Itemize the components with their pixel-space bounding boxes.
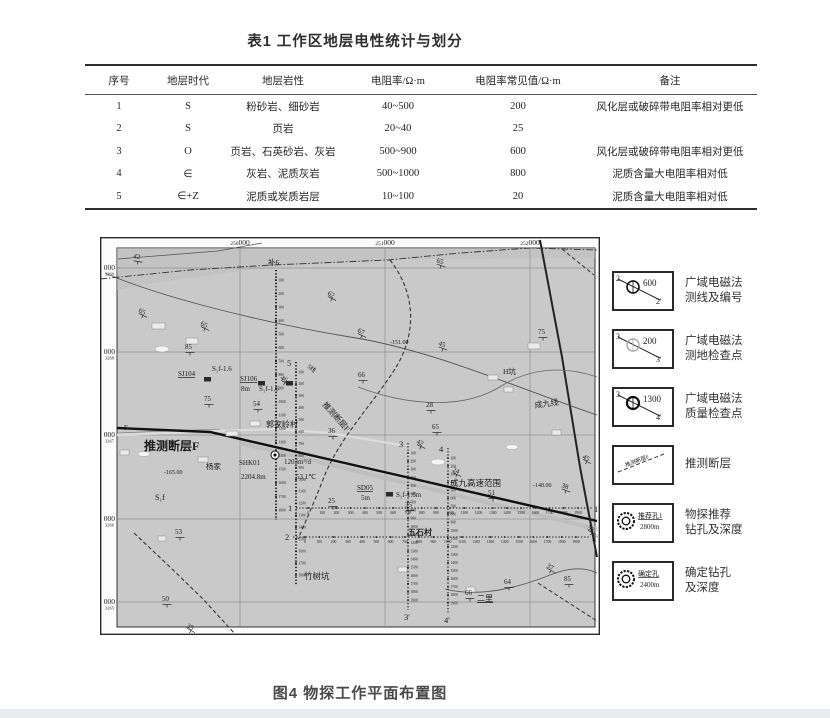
legend-symbol-box: 推荐孔12800m [612, 503, 674, 543]
table-cell: 泥质含量大电阻率相对低 [583, 185, 757, 209]
station-dot [407, 460, 409, 462]
station-dot [478, 507, 480, 509]
legend-symbol-text: 确定孔 [638, 569, 659, 578]
northing-label: 3268 [105, 356, 115, 361]
map-label: 竹树坑 [304, 571, 330, 581]
station-dot [275, 509, 277, 511]
map-label: -165.00 [164, 470, 183, 476]
table-cell: 10~100 [343, 185, 453, 209]
station-label: 1600 [451, 577, 458, 581]
legend-symbol-text: 200 [643, 336, 657, 346]
station-label: 1300 [411, 549, 418, 553]
station-dot [375, 536, 377, 538]
station-dot [275, 347, 277, 349]
station-label: 1000 [446, 511, 454, 515]
map-legend: 26002'广域电磁法测线及编号32003'广域电磁法测地检查点313004'广… [612, 272, 812, 620]
station-dot [547, 536, 549, 538]
column-header: 电阻率/Ω·m [343, 65, 453, 95]
station-label: 1300 [299, 514, 306, 518]
station-dot [295, 491, 297, 493]
station-marker [204, 377, 211, 382]
legend-label-line: 测线及编号 [685, 291, 743, 306]
map-label: 66 [358, 371, 366, 379]
map-label: 5m [361, 494, 371, 502]
map-label: S₁f-1.6 [259, 385, 279, 393]
legend-label-line: 物探推荐 [685, 508, 743, 523]
station-dot [275, 496, 277, 498]
station-dot [275, 360, 277, 362]
station-label: 1700 [546, 511, 554, 515]
station-dot [336, 507, 338, 509]
station-label: 600 [390, 511, 396, 515]
table-cell: 600 [453, 140, 583, 163]
station-label: 900 [433, 511, 439, 515]
station-label: 300 [345, 540, 351, 544]
legend-symbol-text: 推测断层F [624, 452, 650, 468]
station-label: 800 [419, 511, 425, 515]
table-header-row: 序号地层时代地层岩性电阻率/Ω·m电阻率常见值/Ω·m备注 [85, 65, 757, 95]
station-label: 1400 [503, 511, 511, 515]
station-dot [390, 536, 392, 538]
northing-label: 3267 [105, 439, 115, 444]
station-dot [404, 536, 406, 538]
legend-label-line: 广域电磁法 [685, 392, 743, 407]
station-label: 1600 [279, 481, 286, 485]
station-dot [447, 465, 449, 467]
station-label: 400 [299, 406, 305, 410]
station-label: 500 [373, 540, 379, 544]
legend-symbol-text: 2400m [640, 581, 660, 589]
map-label: -151.00 [390, 340, 409, 346]
building [528, 343, 540, 349]
building [158, 536, 166, 541]
station-label: 1000 [451, 529, 458, 533]
map-label: S₁f-1.6m [396, 491, 422, 499]
station-dot [318, 536, 320, 538]
legend-label: 推测断层 [685, 457, 731, 472]
station-label: 300 [299, 394, 305, 398]
drill-hole-glyph [622, 517, 630, 525]
map-label: 郭家岭村 [266, 419, 298, 429]
survey-map: 2500002510002520000003269000326800032670… [100, 237, 600, 635]
table-cell: 4 [85, 163, 153, 186]
table-row: 1S粉砂岩、细砂岩40~500200风化层或破碎带电阻率相对更低 [85, 95, 757, 118]
station-dot [295, 431, 297, 433]
station-label: 600 [299, 430, 305, 434]
map-label: 补6 [268, 257, 279, 267]
legend-item: 确定孔2400m确定钻孔及深度 [612, 562, 812, 599]
station-dot [295, 407, 297, 409]
station-dot [295, 455, 297, 457]
map-label: 85 [564, 575, 572, 583]
station-label: 1500 [411, 566, 418, 570]
map-label: 53 [175, 528, 183, 536]
station-label: 500 [451, 489, 457, 493]
legend-label-line: 及深度 [685, 581, 731, 596]
station-label: 1600 [299, 549, 306, 553]
station-dot [295, 395, 297, 397]
legend-label: 物探推荐钻孔及深度 [685, 508, 743, 538]
building [552, 430, 561, 435]
station-dot [364, 507, 366, 509]
station-dot [295, 443, 297, 445]
station-label: 1400 [299, 526, 306, 530]
station-dot [435, 507, 437, 509]
station-label: 1800 [560, 511, 568, 515]
station-label: 100 [411, 451, 417, 455]
column-header: 地层时代 [153, 65, 223, 95]
station-dot [432, 536, 434, 538]
legend-label-line: 钻孔及深度 [685, 523, 743, 538]
station-dot [407, 591, 409, 593]
station-label: 1800 [558, 540, 566, 544]
station-dot [575, 536, 577, 538]
station-dot [447, 522, 449, 524]
map-label: SHK01 [239, 459, 261, 467]
station-label: 100 [319, 511, 325, 515]
map-label: 二里 [477, 594, 493, 603]
legend-label-line: 广域电磁法 [685, 334, 743, 349]
table-cell: 20 [453, 185, 583, 209]
table-cell: 灰岩、泥质灰岩 [223, 163, 343, 186]
map-label: 85 [185, 343, 193, 351]
map-label: 75 [204, 395, 212, 403]
station-label: 200 [279, 292, 285, 296]
station-dot [407, 550, 409, 552]
legend-symbol-text: 2800m [640, 523, 660, 531]
table-cell: 页岩 [223, 118, 343, 141]
column-header: 电阻率常见值/Ω·m [453, 65, 583, 95]
station-dot [447, 457, 449, 459]
station-dot [447, 562, 449, 564]
table-cell: 40~500 [343, 95, 453, 118]
station-dot [447, 530, 449, 532]
station-label: 700 [402, 540, 408, 544]
station-dot [447, 473, 449, 475]
legend-symbol-text: 1300 [643, 394, 662, 404]
map-label: 28 [426, 401, 434, 409]
station-dot [549, 507, 551, 509]
station-dot [392, 507, 394, 509]
map-label: 64 [504, 578, 512, 586]
legend-symbol-text: 4' [656, 413, 662, 421]
station-label: 200 [331, 540, 337, 544]
station-label: 200 [411, 459, 417, 463]
building [226, 431, 238, 436]
station-dot [295, 550, 297, 552]
station-label: 900 [299, 466, 305, 470]
station-dot [407, 485, 409, 487]
station-dot [407, 468, 409, 470]
station-label: 1200 [475, 511, 483, 515]
station-label: 200 [299, 382, 305, 386]
station-marker [386, 492, 393, 497]
station-dot [506, 507, 508, 509]
legend-symbol-text: 2 [616, 274, 620, 283]
station-dot [447, 497, 449, 499]
page: 表1 工作区地层电性统计与划分 序号地层时代地层岩性电阻率/Ω·m电阻率常见值/… [0, 0, 830, 718]
station-dot [447, 554, 449, 556]
station-label: 0 [304, 540, 306, 544]
station-label: 1800 [451, 593, 458, 597]
map-label: SJ106 [240, 375, 258, 383]
station-dot [407, 599, 409, 601]
legend-item: 推测断层F推测断层 [612, 446, 812, 483]
station-dot [518, 536, 520, 538]
line-number: 5 [287, 358, 291, 368]
pond [506, 445, 518, 450]
table-row: 3O页岩、石英砂岩、灰岩500~900600风化层或破碎带电阻率相对更低 [85, 140, 757, 163]
station-label: 100 [279, 278, 285, 282]
station-label: 1700 [544, 540, 552, 544]
map-label: SD05 [357, 484, 373, 492]
station-label: 300 [279, 305, 285, 309]
map-label: S₁f-1.6 [212, 365, 232, 373]
station-dot [407, 583, 409, 585]
table-cell: 20~40 [343, 118, 453, 141]
station-dot [295, 514, 297, 516]
station-dot [490, 536, 492, 538]
map-label: 53.1℃ [296, 473, 316, 481]
legend-label-line: 推测断层 [685, 457, 731, 472]
station-dot [563, 507, 565, 509]
table-cell: ∈+Z [153, 185, 223, 209]
station-label: 500 [376, 511, 382, 515]
station-label: 600 [388, 540, 394, 544]
legend-symbol-box: 确定孔2400m [612, 561, 674, 601]
station-dot [307, 507, 309, 509]
well-symbol [273, 453, 276, 456]
station-label: 700 [405, 511, 411, 515]
map-label: 54 [253, 400, 261, 408]
map-label: 五石村 [408, 527, 432, 537]
station-label: 1600 [411, 574, 418, 578]
station-dot [447, 578, 449, 580]
station-dot [447, 570, 449, 572]
legend-item: 推荐孔12800m物探推荐钻孔及深度 [612, 504, 812, 541]
station-label: 1100 [458, 540, 466, 544]
building [398, 567, 407, 572]
line-number: 1 [288, 503, 292, 513]
station-dot [275, 482, 277, 484]
station-dot [475, 536, 477, 538]
station-dot [532, 536, 534, 538]
pond [431, 459, 445, 465]
table-row: 2S页岩20~4025 [85, 118, 757, 141]
legend-symbol-box: 313004' [612, 387, 674, 427]
station-dot [504, 536, 506, 538]
table-cell: 泥质含量大电阻率相对低 [583, 163, 757, 186]
station-marker [286, 381, 293, 386]
legend-item: 26002'广域电磁法测线及编号 [612, 272, 812, 309]
legend-label-line: 质量检查点 [685, 407, 743, 422]
legend-label: 广域电磁法测地检查点 [685, 334, 743, 364]
line-number: 3' [404, 612, 410, 622]
map-label: 35 [405, 501, 413, 509]
station-label: 900 [411, 517, 417, 521]
station-label: 900 [279, 387, 285, 391]
footer-bar [0, 709, 830, 718]
building [120, 450, 129, 455]
legend-label: 确定钻孔及深度 [685, 566, 731, 596]
table-row: 5∈+Z泥质或炭质岩层10~10020泥质含量大电阻率相对低 [85, 185, 757, 209]
legend-symbol-text: 3' [656, 355, 662, 363]
map-label: -148.00 [533, 483, 552, 489]
station-label: 900 [431, 540, 437, 544]
station-dot [304, 536, 306, 538]
station-dot [407, 566, 409, 568]
table-cell: 泥质或炭质岩层 [223, 185, 343, 209]
table-cell: 风化层或破碎带电阻率相对更低 [583, 95, 757, 118]
table-cell: O [153, 140, 223, 163]
station-dot [561, 536, 563, 538]
building [250, 421, 260, 426]
station-label: 1600 [529, 540, 537, 544]
table-cell [583, 118, 757, 141]
legend-symbol: 确定孔2400m [614, 563, 668, 595]
station-dot [295, 371, 297, 373]
station-label: 500 [279, 332, 285, 336]
line-number: 1' [594, 504, 600, 514]
legend-symbol-box: 32003' [612, 329, 674, 369]
station-label: 1500 [451, 569, 458, 573]
map-label: H坑 [503, 366, 516, 376]
legend-symbol: 26002' [614, 273, 668, 305]
legend-symbol: 推测断层F [614, 447, 668, 479]
station-dot [378, 507, 380, 509]
station-dot [275, 374, 277, 376]
station-label: 1100 [461, 511, 469, 515]
station-label: 100 [451, 456, 457, 460]
legend-symbol-text: 2' [656, 297, 662, 305]
station-label: 1700 [411, 582, 418, 586]
station-label: 600 [451, 497, 457, 501]
legend-symbol-text: 3 [616, 390, 620, 399]
station-label: 1800 [279, 508, 286, 512]
station-dot [295, 467, 297, 469]
legend-item: 313004'广域电磁法质量检查点 [612, 388, 812, 425]
legend-label-line: 测地检查点 [685, 349, 743, 364]
station-label: 1900 [572, 540, 580, 544]
table-cell: S [153, 118, 223, 141]
station-label: 1200 [451, 545, 458, 549]
station-dot [347, 536, 349, 538]
station-label: 800 [416, 540, 422, 544]
station-label: 700 [299, 442, 305, 446]
station-dot [295, 502, 297, 504]
station-label: 100 [299, 370, 305, 374]
station-label: 1200 [472, 540, 480, 544]
station-dot [447, 546, 449, 548]
station-label: 1900 [411, 598, 418, 602]
map-label: S₁f [155, 493, 165, 502]
station-dot [275, 469, 277, 471]
legend-symbol-text: 推荐孔1 [638, 511, 663, 520]
map-label: 推测断层F [144, 438, 199, 453]
table-cell: 1 [85, 95, 153, 118]
legend-symbol-text: 3 [616, 332, 620, 341]
map-label: F [124, 424, 128, 432]
station-label: 0 [307, 511, 309, 515]
station-label: 400 [362, 511, 368, 515]
column-header: 地层岩性 [223, 65, 343, 95]
station-dot [461, 536, 463, 538]
station-dot [361, 536, 363, 538]
legend-label: 广域电磁法测线及编号 [685, 276, 743, 306]
map-label: 65 [432, 423, 440, 431]
station-dot [447, 505, 449, 507]
map-label: 2204.8m [241, 473, 266, 481]
station-label: 1300 [489, 511, 497, 515]
station-label: 1500 [517, 511, 525, 515]
station-label: 500 [411, 484, 417, 488]
line-number: 4' [444, 615, 450, 625]
station-label: 300 [348, 511, 354, 515]
station-label: 700 [279, 359, 285, 363]
map-label: 8m [241, 385, 251, 393]
station-label: 200 [334, 511, 340, 515]
table-cell: 500~1000 [343, 163, 453, 186]
legend-symbol-box: 26002' [612, 271, 674, 311]
northing-label: 3265 [105, 606, 115, 611]
station-dot [447, 602, 449, 604]
station-dot [447, 489, 449, 491]
column-header: 备注 [583, 65, 757, 95]
legend-label-line: 广域电磁法 [685, 276, 743, 291]
station-dot [275, 306, 277, 308]
station-dot [275, 401, 277, 403]
station-label: 300 [411, 468, 417, 472]
table-row: 4∈灰岩、泥质灰岩500~1000800泥质含量大电阻率相对低 [85, 163, 757, 186]
station-label: 1300 [487, 540, 495, 544]
station-label: 1100 [279, 414, 286, 418]
table-cell: 25 [453, 118, 583, 141]
station-dot [295, 562, 297, 564]
station-dot [333, 536, 335, 538]
station-label: 1300 [279, 441, 286, 445]
table-cell: ∈ [153, 163, 223, 186]
station-label: 1900 [451, 601, 458, 605]
station-dot [463, 507, 465, 509]
station-dot [421, 507, 423, 509]
station-dot [295, 538, 297, 540]
strata-table: 序号地层时代地层岩性电阻率/Ω·m电阻率常见值/Ω·m备注 1S粉砂岩、细砂岩4… [85, 64, 757, 210]
station-dot [449, 507, 451, 509]
table-cell: 5 [85, 185, 153, 209]
map-label: 50 [162, 595, 170, 603]
building [504, 387, 513, 392]
legend-label: 广域电磁法质量检查点 [685, 392, 743, 422]
legend-symbol-text: 600 [643, 278, 657, 288]
map-label: 成九高速范围 [450, 478, 501, 488]
table-cell: 粉砂岩、细砂岩 [223, 95, 343, 118]
map-label: 75 [538, 328, 546, 336]
map-label: 杨家 [206, 461, 221, 471]
legend-symbol: 32003' [614, 331, 668, 363]
figure-caption: 图4 物探工作平面布置图 [100, 682, 620, 703]
table-cell: 页岩、石英砂岩、灰岩 [223, 140, 343, 163]
station-dot [275, 293, 277, 295]
station-label: 1400 [411, 557, 418, 561]
station-dot [275, 333, 277, 335]
map-label: 1203m³/d [284, 458, 311, 466]
map-label: 51 [488, 489, 496, 497]
legend-symbol: 推荐孔12800m [614, 505, 668, 537]
station-dot [275, 279, 277, 281]
station-dot [447, 481, 449, 483]
station-label: 1400 [501, 540, 509, 544]
station-label: 1100 [299, 490, 306, 494]
